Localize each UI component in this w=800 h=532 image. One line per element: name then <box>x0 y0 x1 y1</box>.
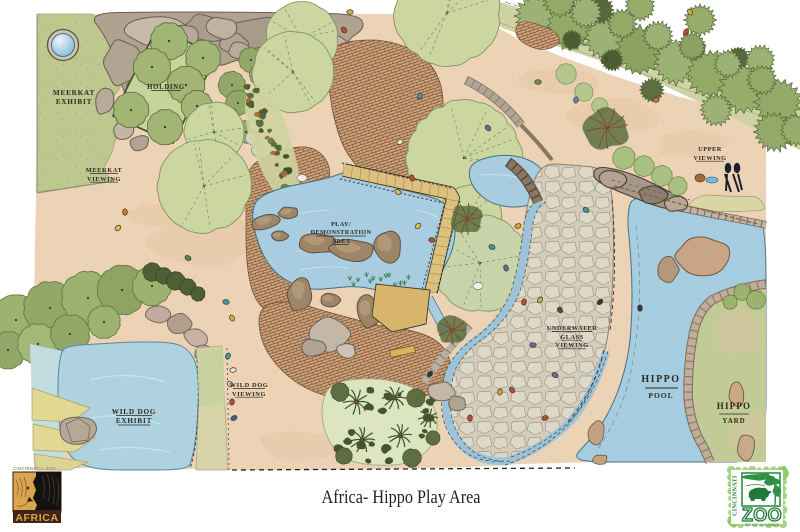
svg-text:HIPPO: HIPPO <box>717 401 752 411</box>
svg-text:POOL: POOL <box>648 391 673 400</box>
svg-text:WILD DOG: WILD DOG <box>112 408 157 416</box>
svg-text:UPPER: UPPER <box>698 146 722 153</box>
svg-text:MEERKAT: MEERKAT <box>53 89 95 97</box>
svg-text:WILD DOG: WILD DOG <box>230 382 269 389</box>
svg-text:EXHIBIT: EXHIBIT <box>56 98 92 106</box>
svg-text:HIPPO: HIPPO <box>641 374 680 385</box>
svg-text:YARD: YARD <box>722 417 745 425</box>
svg-text:EXHIBIT: EXHIBIT <box>116 417 152 425</box>
svg-text:BOTANICAL GARDEN: BOTANICAL GARDEN <box>745 523 780 527</box>
svg-text:CINCINNATI: CINCINNATI <box>732 475 739 516</box>
svg-text:CINCINNATI • ZOO: CINCINNATI • ZOO <box>13 466 56 471</box>
svg-text:Africa- Hippo Play Area: Africa- Hippo Play Area <box>322 487 481 508</box>
svg-text:ZOO: ZOO <box>742 505 782 525</box>
svg-text:PLAY/: PLAY/ <box>331 221 351 228</box>
svg-text:AFRICA: AFRICA <box>15 512 58 524</box>
svg-text:DEMONSTRATION: DEMONSTRATION <box>311 229 372 236</box>
svg-text:HOLDING: HOLDING <box>147 84 185 91</box>
svg-text:AREA: AREA <box>331 238 350 245</box>
svg-text:VIEWING: VIEWING <box>555 342 588 349</box>
svg-text:MEERKAT: MEERKAT <box>86 167 123 174</box>
svg-text:UNDERWATER: UNDERWATER <box>547 325 597 332</box>
